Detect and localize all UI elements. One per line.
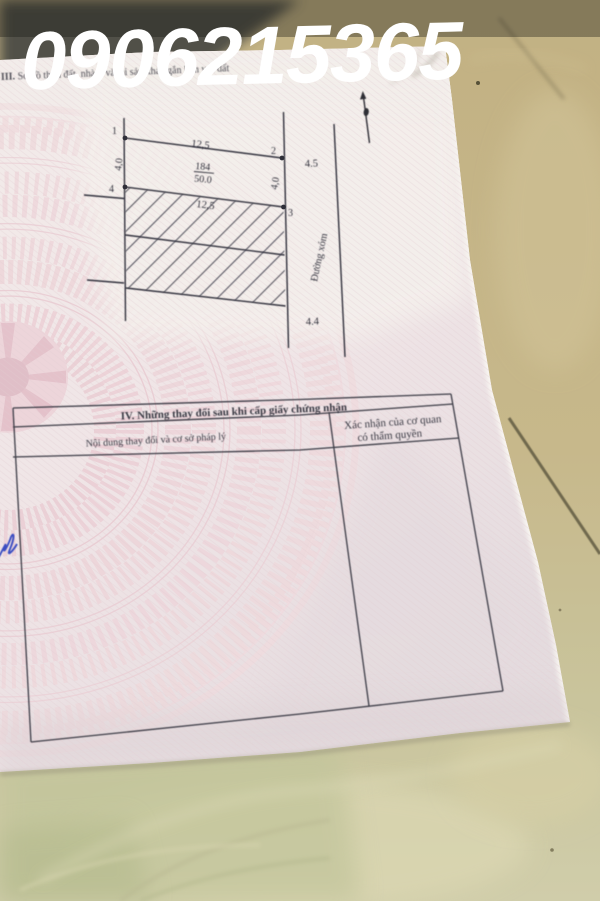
svg-text:4.4: 4.4 bbox=[306, 316, 320, 328]
svg-text:4,0: 4,0 bbox=[269, 176, 282, 190]
svg-text:12,5: 12,5 bbox=[191, 139, 211, 152]
svg-text:4.5: 4.5 bbox=[305, 158, 319, 170]
svg-text:12,5: 12,5 bbox=[196, 199, 216, 212]
svg-text:0906215365: 0906215365 bbox=[20, 6, 466, 108]
svg-text:4,0: 4,0 bbox=[113, 158, 125, 172]
svg-text:50.0: 50.0 bbox=[194, 174, 212, 186]
svg-text:3: 3 bbox=[288, 208, 293, 219]
svg-text:1: 1 bbox=[112, 126, 117, 137]
svg-text:4: 4 bbox=[109, 184, 114, 195]
svg-text:2: 2 bbox=[271, 146, 276, 157]
